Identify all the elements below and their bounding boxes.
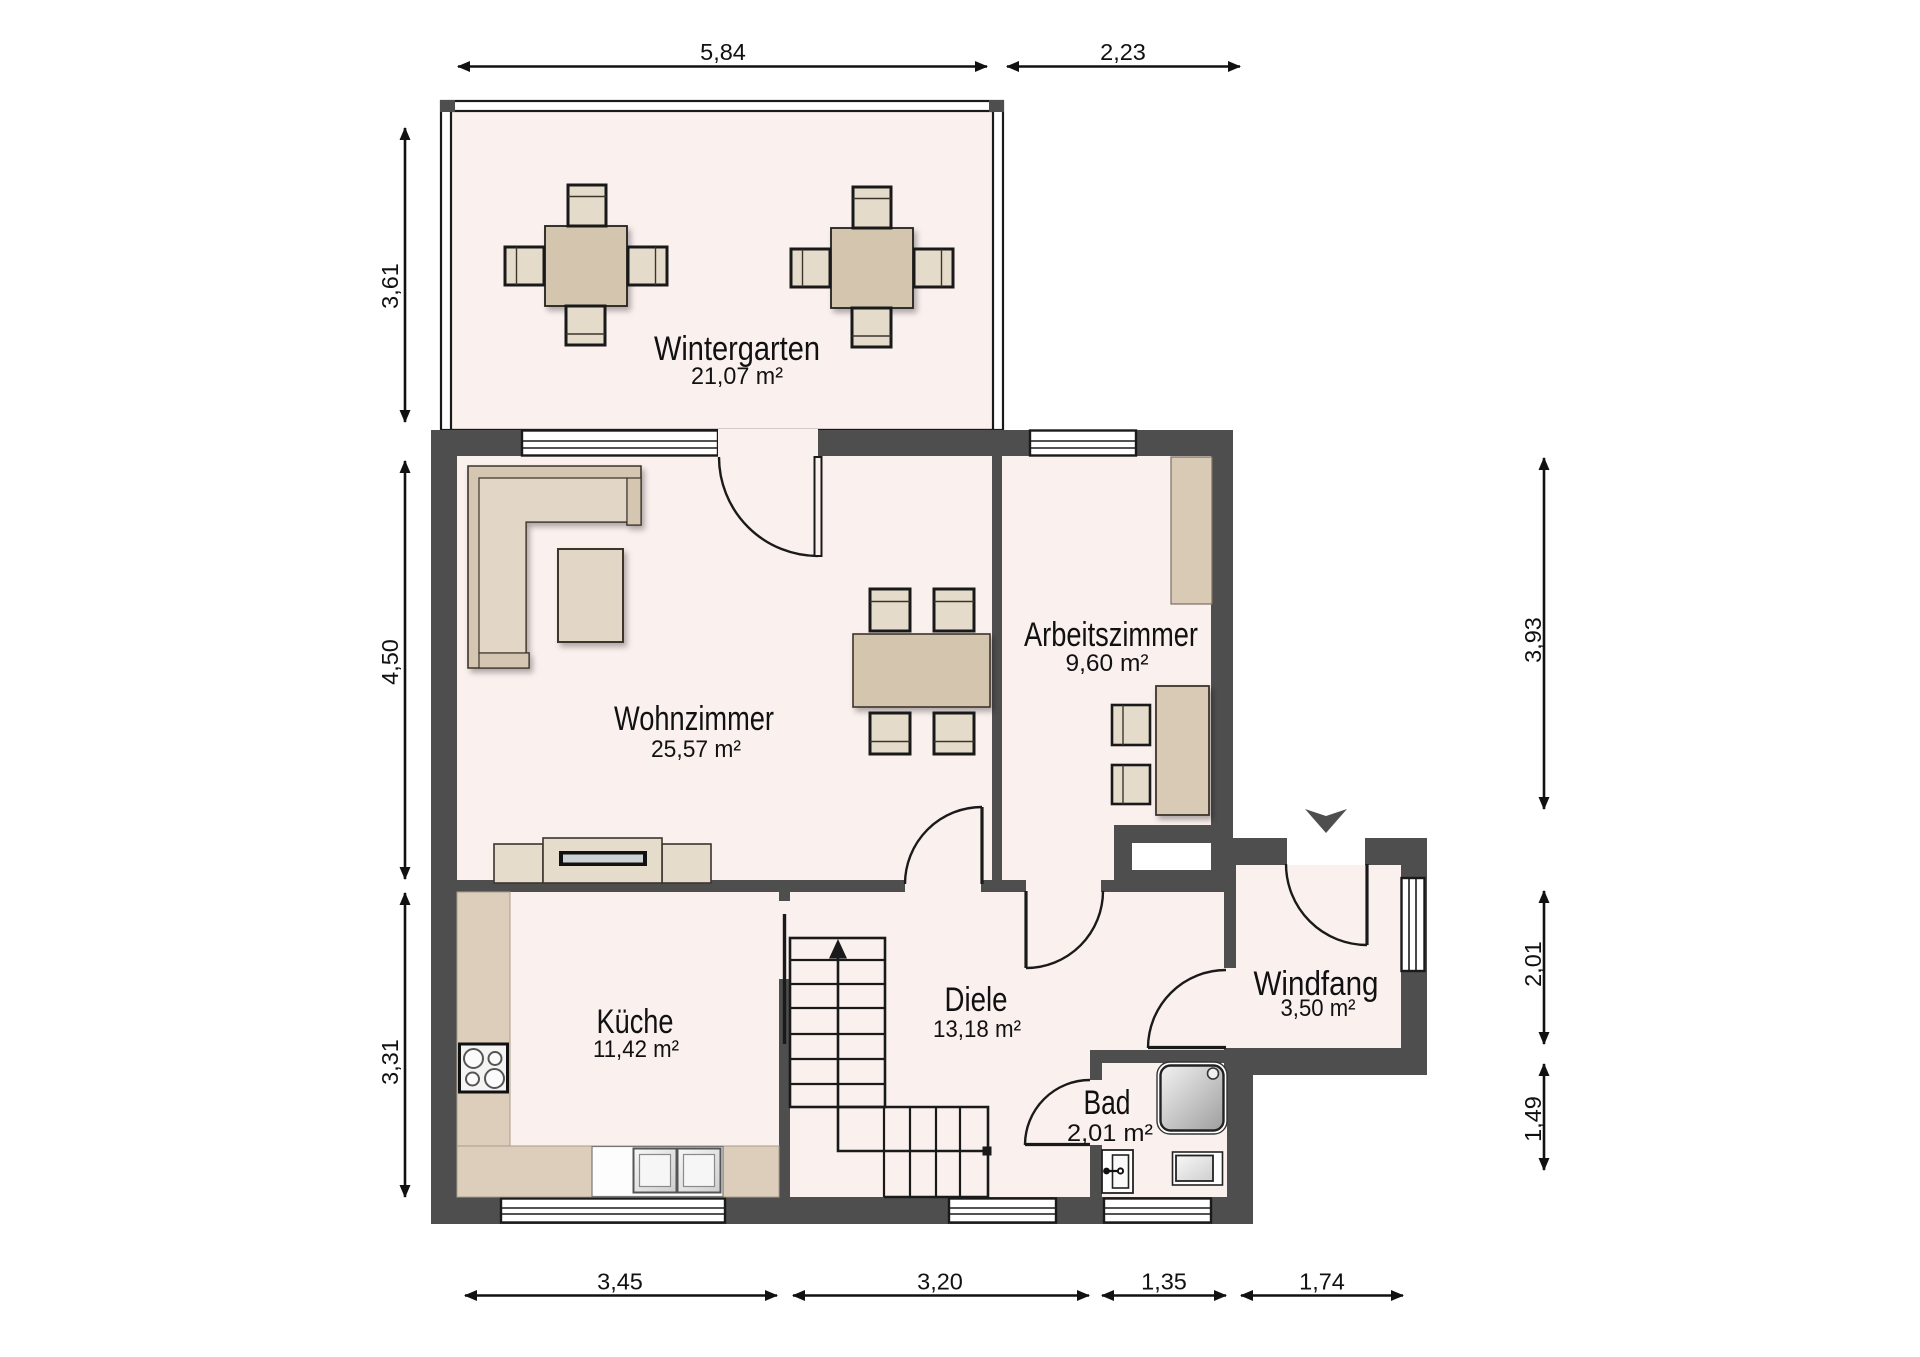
svg-text:2,01: 2,01	[1520, 941, 1546, 987]
svg-text:4,50: 4,50	[377, 639, 403, 685]
svg-text:3,93: 3,93	[1520, 617, 1546, 663]
svg-text:Diele: Diele	[945, 981, 1008, 1019]
svg-text:11,42 m²: 11,42 m²	[593, 1036, 679, 1063]
svg-text:Bad: Bad	[1084, 1084, 1131, 1122]
svg-text:1,74: 1,74	[1299, 1269, 1345, 1295]
svg-text:3,20: 3,20	[917, 1269, 963, 1295]
svg-text:Arbeitszimmer: Arbeitszimmer	[1024, 616, 1198, 654]
svg-text:9,60 m²: 9,60 m²	[1066, 650, 1149, 677]
svg-text:3,31: 3,31	[377, 1039, 403, 1085]
svg-text:Wohnzimmer: Wohnzimmer	[614, 700, 774, 738]
svg-text:2,01 m²: 2,01 m²	[1067, 1120, 1153, 1147]
svg-text:3,50 m²: 3,50 m²	[1281, 995, 1356, 1022]
svg-text:3,61: 3,61	[377, 263, 403, 309]
svg-text:25,57 m²: 25,57 m²	[651, 736, 741, 763]
svg-text:1,35: 1,35	[1141, 1269, 1187, 1295]
svg-text:21,07 m²: 21,07 m²	[691, 363, 783, 390]
svg-text:13,18 m²: 13,18 m²	[933, 1016, 1021, 1043]
svg-text:1,49: 1,49	[1520, 1096, 1546, 1142]
svg-text:5,84: 5,84	[700, 39, 746, 65]
svg-text:3,45: 3,45	[597, 1269, 643, 1295]
svg-text:2,23: 2,23	[1100, 39, 1146, 65]
